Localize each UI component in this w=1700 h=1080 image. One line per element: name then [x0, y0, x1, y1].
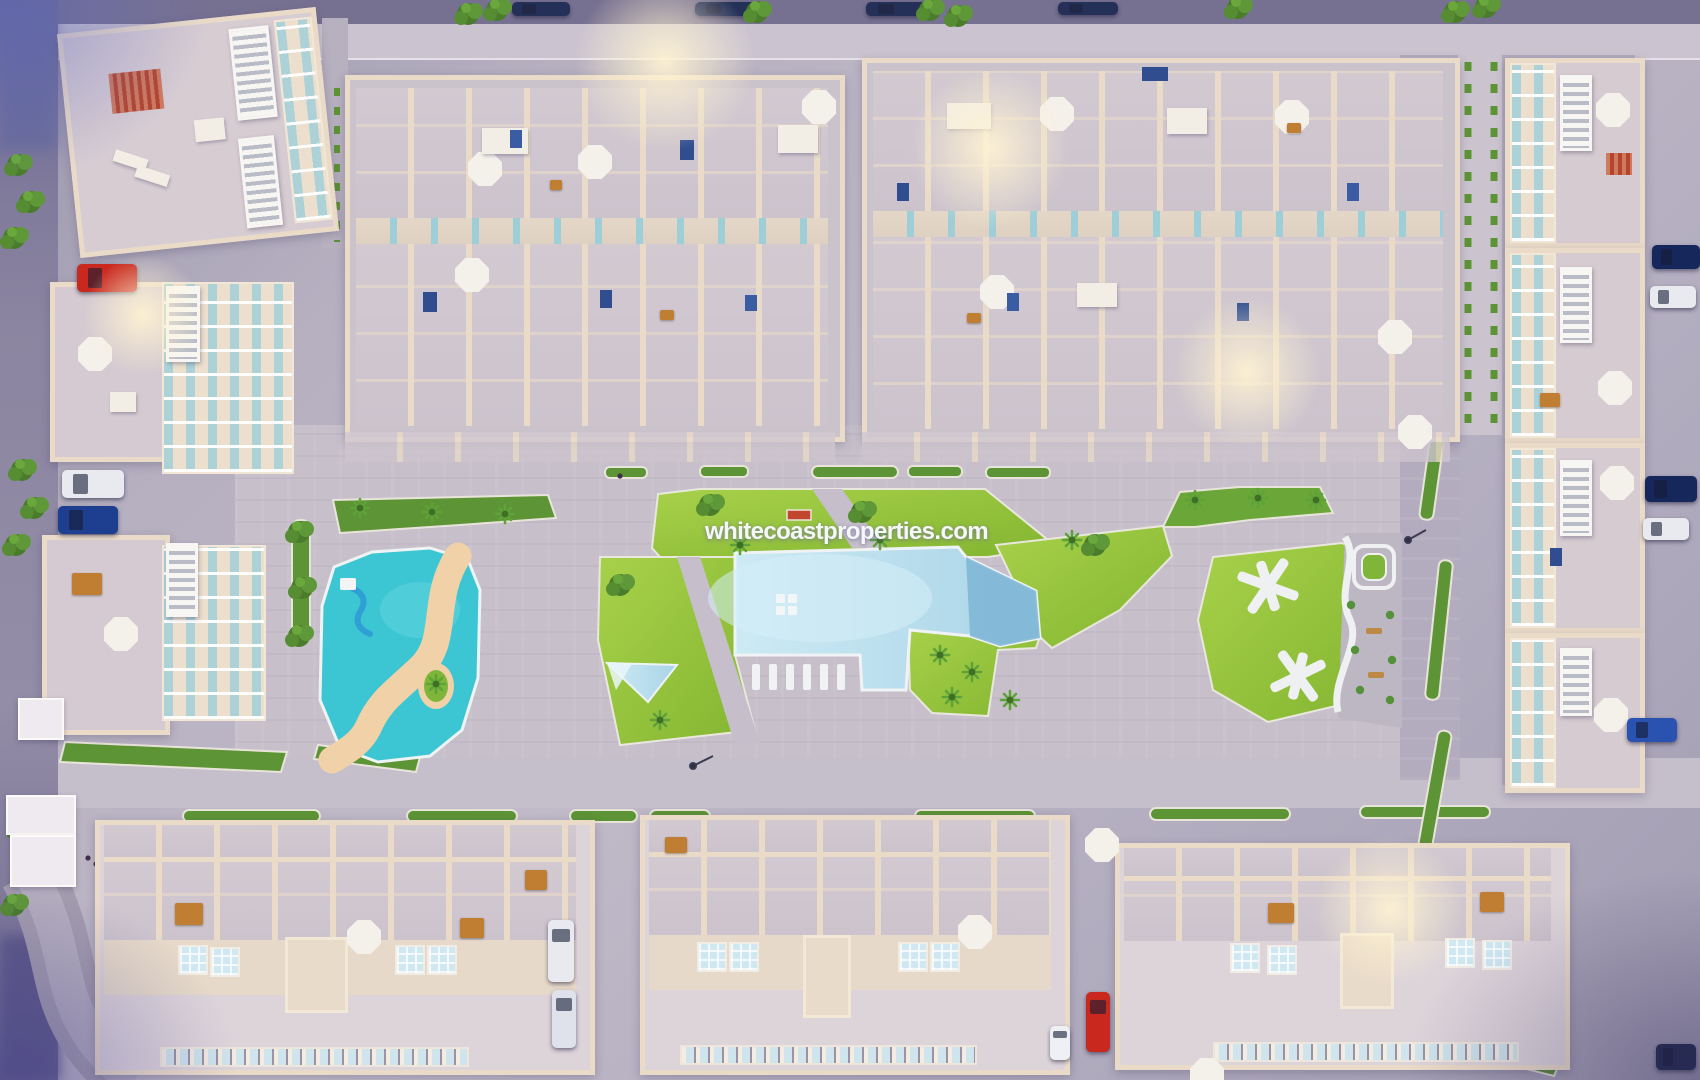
parasol	[1598, 371, 1632, 405]
pergola	[947, 103, 991, 129]
white-van-right-2	[1643, 518, 1689, 540]
blue-car-right	[1627, 718, 1677, 742]
terrace-rug	[108, 69, 164, 114]
skylight	[898, 942, 928, 972]
kids-pool	[320, 548, 480, 762]
navy-car-right-1	[1652, 245, 1700, 269]
skylight	[1445, 938, 1475, 968]
outbuilding	[18, 698, 64, 740]
terrace-units-row	[873, 237, 1443, 429]
roof-terraces	[649, 857, 1051, 935]
dining-set	[460, 918, 484, 938]
parasol	[1600, 466, 1634, 500]
balcony-corridor	[873, 211, 1443, 237]
terrace-block-northeast	[862, 58, 1460, 442]
outbuilding	[6, 795, 76, 835]
townhouse-row-2	[1505, 248, 1645, 443]
apartment-building-southwest	[95, 820, 595, 1075]
skylight	[697, 942, 727, 972]
dining-set	[1287, 123, 1301, 133]
skylight	[1230, 943, 1260, 973]
balcony-row	[160, 1047, 469, 1067]
skylight	[930, 942, 960, 972]
stairwell	[1560, 460, 1592, 536]
lounger-set	[1550, 548, 1562, 566]
balcony-corridor	[356, 218, 828, 244]
white-van-bottom	[1050, 1026, 1070, 1060]
stairwell	[1560, 75, 1592, 151]
parasol	[468, 152, 502, 186]
dining-set	[1540, 393, 1560, 407]
outbuilding	[10, 835, 76, 887]
aerial-development-render: whitecoastproperties.com	[0, 0, 1700, 1080]
blue-car-left	[58, 506, 118, 534]
parasol	[455, 258, 489, 292]
villa-roof-terrace	[50, 282, 170, 462]
lounger-set	[423, 292, 437, 312]
skylight	[1267, 945, 1297, 975]
north-gardens	[1124, 848, 1551, 881]
townhouse-row-4	[1505, 633, 1645, 793]
dark-car-bottom-right	[1656, 1044, 1696, 1070]
pergola	[1167, 108, 1207, 134]
balcony-row	[1213, 1042, 1519, 1062]
lounger-set	[680, 140, 694, 160]
dining-set	[525, 870, 547, 890]
roof-box	[110, 392, 136, 412]
dining-set	[665, 837, 687, 853]
villa-top-left	[57, 7, 339, 258]
sun-loungers	[752, 664, 845, 690]
parasol	[1594, 698, 1628, 732]
villa-west-low	[42, 535, 264, 727]
parasol	[78, 337, 112, 371]
skylight	[210, 947, 240, 977]
dining-set	[1480, 892, 1504, 912]
skylight	[729, 942, 759, 972]
stair-tower	[285, 937, 348, 1013]
north-gardens	[649, 820, 1051, 857]
lounger-set	[1007, 293, 1019, 311]
garden-strip	[862, 432, 1450, 462]
white-car-left	[62, 470, 124, 498]
lounger-set	[1237, 303, 1249, 321]
lounger-set	[600, 290, 612, 308]
townhouse-row-1	[1505, 58, 1645, 248]
townhouse-facade	[1510, 253, 1556, 438]
pergola	[778, 125, 818, 153]
lounger-set	[745, 295, 757, 311]
skylight	[427, 945, 457, 975]
lounger-set	[510, 130, 522, 148]
skylight	[395, 945, 425, 975]
apartment-building-south-center	[640, 815, 1070, 1075]
townhouse-row-3	[1505, 443, 1645, 633]
watermark-text: whitecoastproperties.com	[705, 518, 988, 546]
townhouse-facade	[1510, 448, 1556, 628]
white-van-right-1	[1650, 286, 1696, 308]
dining-set-red	[1606, 153, 1632, 175]
roof-box	[194, 117, 226, 142]
dining-set	[72, 573, 102, 595]
dining-set	[175, 903, 203, 925]
stairwell	[1560, 648, 1592, 716]
dining-set	[550, 180, 562, 190]
dining-set	[1268, 903, 1294, 923]
east-garden-bed	[1337, 533, 1402, 728]
stairwell	[166, 543, 198, 617]
stairwell	[228, 25, 277, 121]
parasol	[1596, 93, 1630, 127]
villa-west-mid	[50, 282, 290, 472]
lounger	[134, 165, 170, 187]
north-gardens	[104, 825, 576, 862]
red-car-bottom	[1086, 992, 1110, 1052]
white-car-bottom-2	[552, 990, 576, 1048]
stairwell	[1560, 267, 1592, 343]
stairwell	[238, 135, 283, 228]
dining-set	[967, 313, 981, 323]
lounger-set	[1347, 183, 1359, 201]
garden-strip	[345, 432, 835, 462]
white-car-bottom-1	[548, 920, 574, 982]
dining-set	[660, 310, 674, 320]
skylight	[178, 945, 208, 975]
terrace-block-northwest	[345, 75, 845, 442]
stair-tower	[1340, 933, 1394, 1009]
townhouse-facade	[1510, 63, 1556, 243]
apartment-building-southeast	[1115, 843, 1570, 1070]
balcony-row	[680, 1045, 977, 1065]
lounger-set	[1142, 67, 1168, 81]
stairwell	[166, 286, 200, 362]
skylight	[1482, 940, 1512, 970]
red-car-topleft	[77, 264, 137, 292]
townhouse-facade	[1510, 638, 1556, 788]
terrace-units-row	[356, 244, 828, 426]
roof-terraces	[104, 862, 576, 940]
navy-car-right-2	[1645, 476, 1697, 502]
pergola	[1077, 283, 1117, 307]
stair-tower	[803, 935, 851, 1018]
lounger-set	[897, 183, 909, 201]
